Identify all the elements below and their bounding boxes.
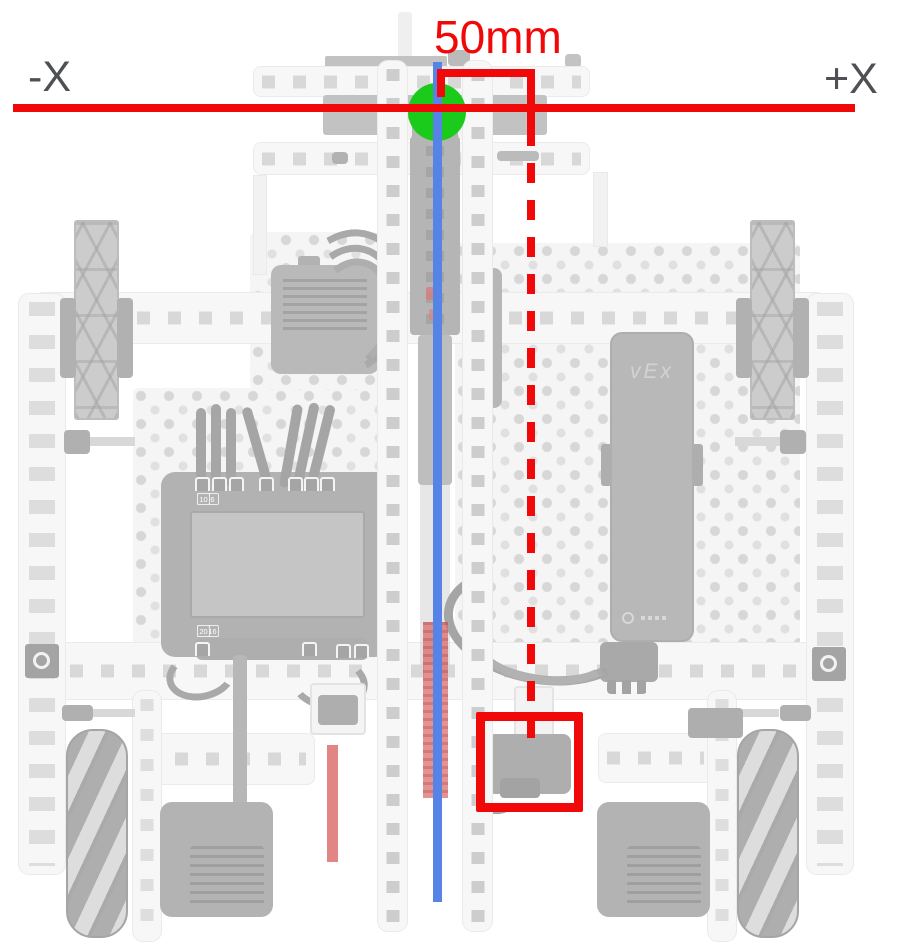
- battery-tab-right: [692, 444, 703, 486]
- cable-connector: [318, 695, 358, 725]
- port-label: 20: [197, 625, 210, 637]
- port-clip: [259, 477, 274, 491]
- gps-highlight-box: [476, 712, 583, 812]
- gps-side-bar: [688, 708, 743, 738]
- axle-block-tr: [780, 430, 806, 454]
- axle-block-tl: [64, 430, 90, 454]
- wire-3: [226, 408, 236, 486]
- port-clip: [212, 477, 227, 491]
- bracket-tick-left: [437, 69, 445, 97]
- post-left: [253, 175, 267, 275]
- axis-label-positive-x: +X: [824, 58, 878, 101]
- offset-measurement-label: 50mm: [434, 14, 562, 60]
- drive-motor-right: [597, 802, 710, 917]
- wire-1: [196, 408, 206, 486]
- inner-rail-left: [132, 690, 162, 942]
- mecanum-wheel-left: [66, 729, 128, 938]
- gps-offset-diagram: 12345678910 11121314151617181920 vEx: [0, 0, 899, 944]
- guard-hub-right-b: [793, 298, 809, 378]
- port-clip: [354, 644, 369, 658]
- post-right: [593, 172, 608, 247]
- battery-logo: vEx: [630, 360, 674, 384]
- axle-shaft-bl: [93, 709, 135, 717]
- port-clip: [288, 477, 303, 491]
- guard-hub-right-a: [736, 298, 752, 378]
- battery-indicator-dots: [641, 616, 667, 620]
- wheel-rail-right: [598, 733, 713, 783]
- port-label: 10: [197, 493, 210, 505]
- axle-block-bl: [62, 705, 93, 721]
- wheel-guard-right: [750, 220, 795, 420]
- mecanum-wheel-right: [737, 729, 799, 938]
- brain-screen: [190, 511, 365, 618]
- port-clip: [229, 477, 244, 491]
- guard-hub-left-b: [117, 298, 133, 378]
- center-beam-left: [377, 60, 408, 932]
- bracket-top: [437, 69, 535, 77]
- side-rail-left: [18, 293, 66, 875]
- axle-shaft-br: [737, 709, 779, 717]
- port-clip: [302, 642, 317, 656]
- battery: vEx: [610, 332, 694, 642]
- lock-plate-right-ring: [820, 655, 837, 672]
- wheel-rail-left: [135, 733, 315, 785]
- wire-2: [211, 404, 221, 486]
- robot-photo: 12345678910 11121314151617181920 vEx: [0, 0, 899, 944]
- guard-hub-left-a: [60, 298, 76, 378]
- axis-label-negative-x: -X: [28, 56, 71, 99]
- offset-dashed-line: [527, 126, 535, 753]
- axle-shaft-tr: [735, 437, 780, 446]
- offset-strip-narrow: [327, 745, 338, 862]
- port-clip: [195, 477, 210, 491]
- side-rail-right: [806, 293, 854, 875]
- axle-pin-left: [332, 152, 348, 164]
- battery-prongs: [607, 680, 647, 694]
- battery-tab-left: [601, 444, 612, 486]
- axle-shaft-tl: [90, 437, 135, 446]
- robot-centerline: [433, 62, 442, 902]
- port-clip: [304, 477, 319, 491]
- axle-block-br: [780, 705, 811, 721]
- wheel-guard-left: [74, 220, 119, 420]
- x-axis-line: [13, 104, 855, 112]
- drive-motor-left: [160, 802, 273, 917]
- lock-plate-left-ring: [33, 652, 50, 669]
- motor-shaft-left: [233, 655, 247, 805]
- port-clip: [320, 477, 335, 491]
- bracket-tick-right: [527, 69, 535, 126]
